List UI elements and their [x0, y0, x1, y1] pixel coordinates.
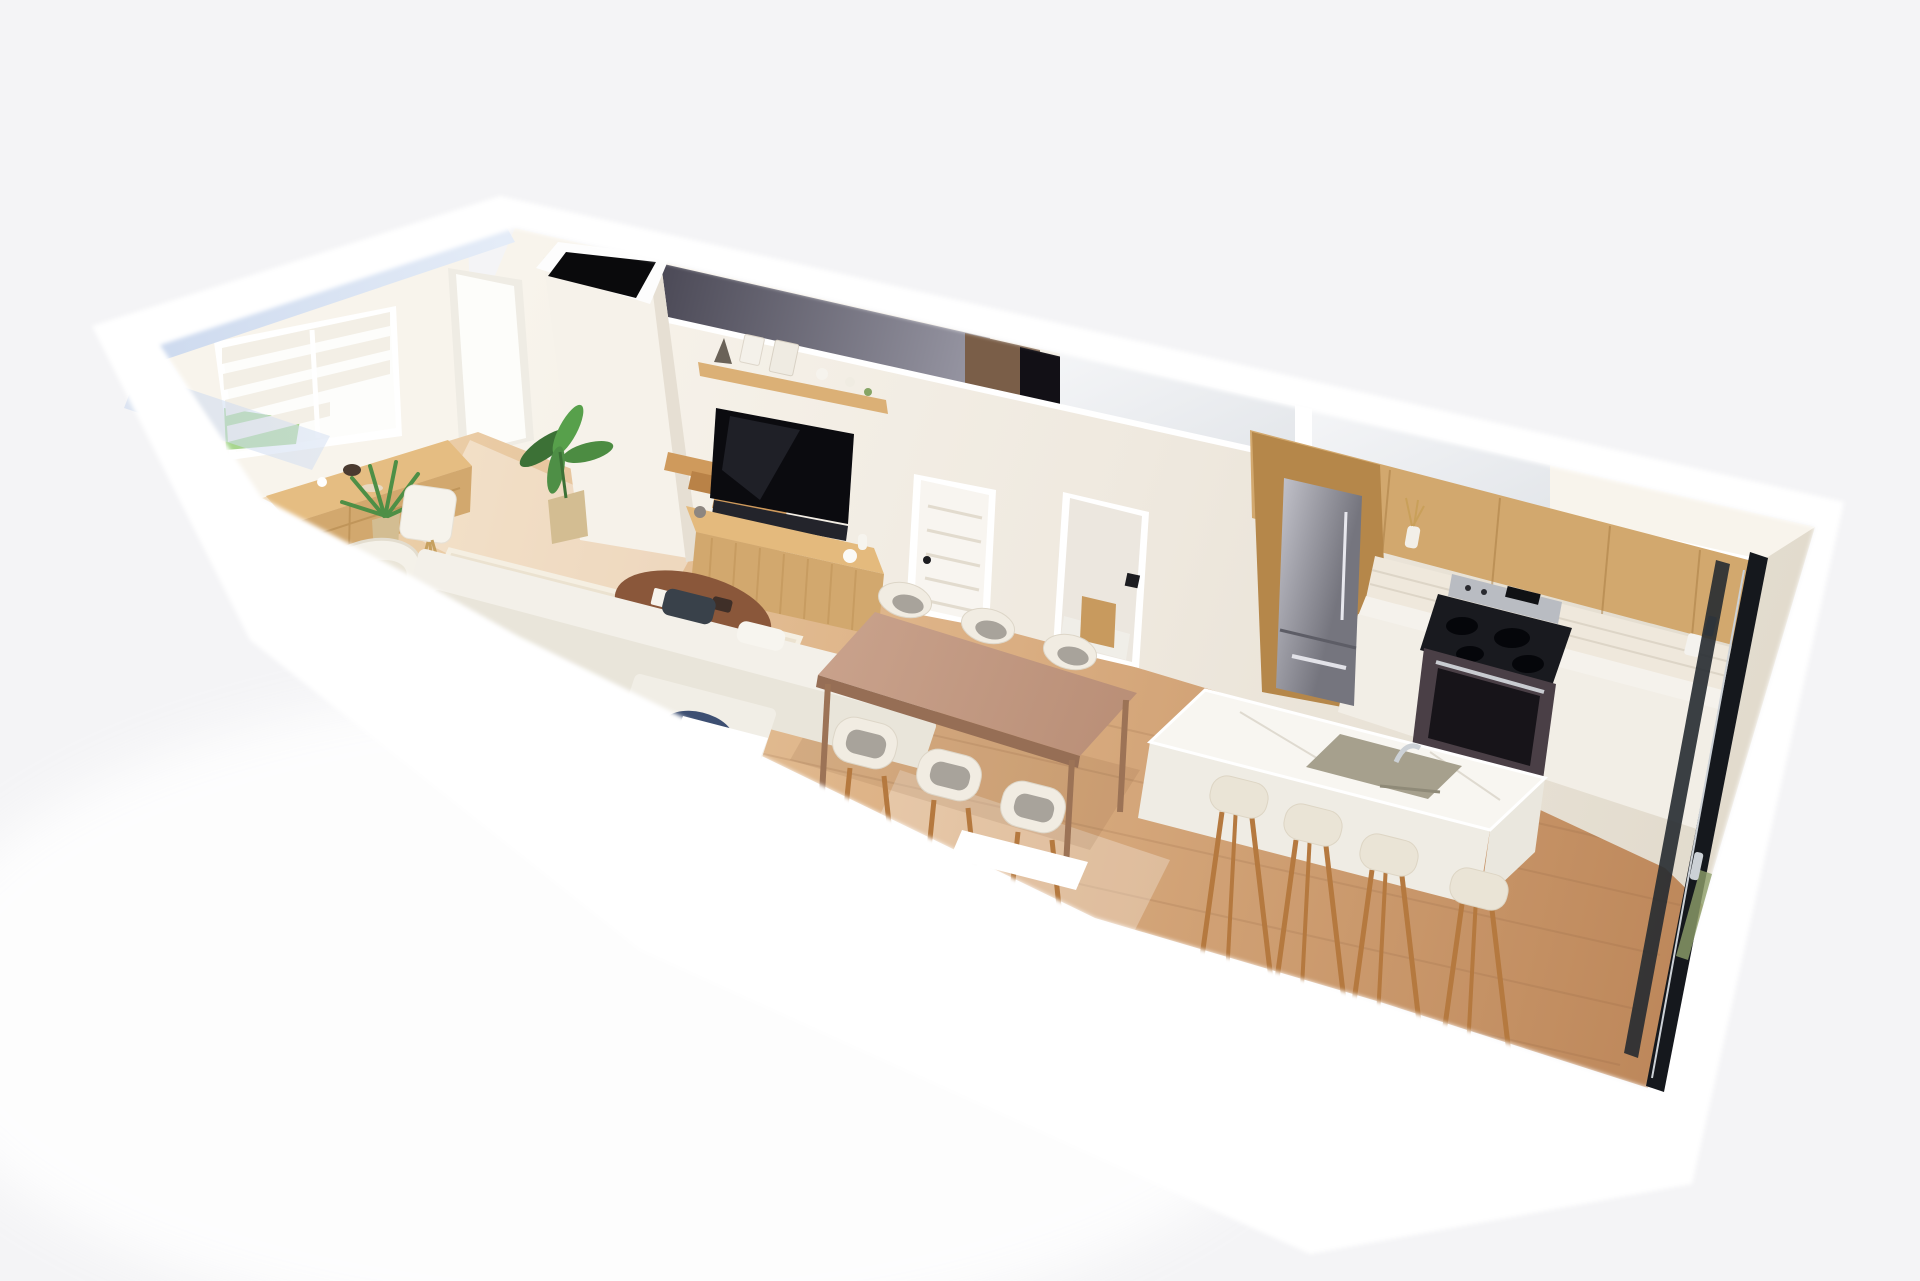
fridge-body — [1276, 478, 1362, 706]
gray-vase — [694, 506, 706, 518]
knob — [1465, 585, 1471, 591]
cup — [317, 477, 327, 487]
entry-door — [448, 268, 534, 458]
white-vase — [845, 377, 855, 387]
white-gourd-vase — [843, 549, 857, 563]
knob — [1481, 589, 1487, 595]
fridge — [1276, 478, 1362, 706]
white-vase — [816, 368, 828, 380]
burner — [1512, 655, 1544, 673]
door-handle — [923, 556, 931, 564]
floorplan-render-canvas — [0, 0, 1920, 1281]
lamp-shade — [398, 484, 457, 545]
burner — [1494, 628, 1530, 648]
thermostat — [1125, 573, 1140, 588]
burner — [1446, 617, 1478, 635]
round-box — [343, 464, 361, 476]
mini-plant — [864, 388, 872, 396]
tall-vase — [858, 534, 867, 550]
floorplan-3d-render — [0, 0, 1920, 1281]
